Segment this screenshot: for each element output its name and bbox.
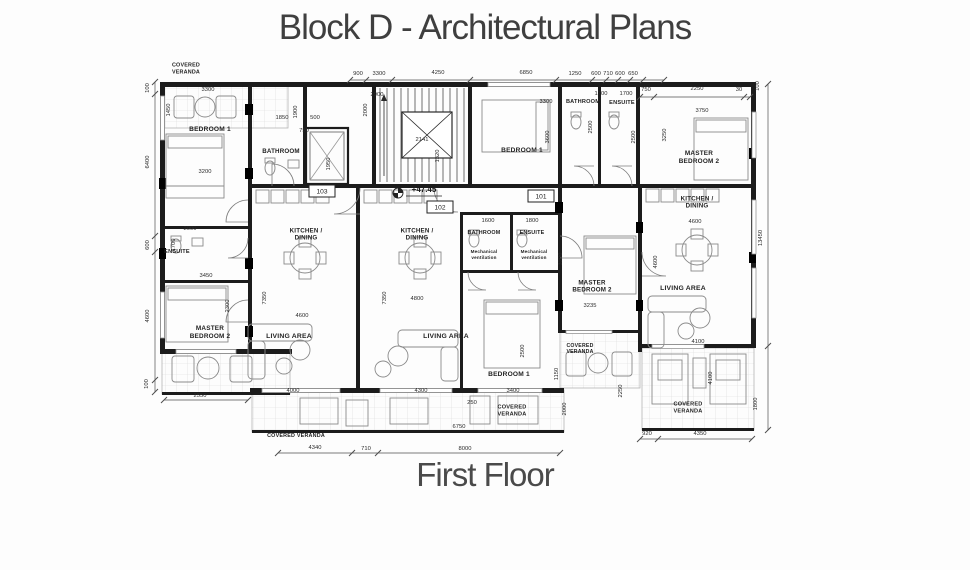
- dimension-label: 100: [144, 379, 150, 389]
- dimension-label: 600: [591, 71, 601, 77]
- dimension-label: 2000: [562, 403, 568, 416]
- room-label: ENSUITE: [520, 230, 545, 236]
- dimension-label: 7350: [382, 292, 388, 305]
- dimension-label: 4340: [309, 445, 322, 451]
- dimension-label: 4250: [432, 70, 445, 76]
- dimension-label: 3750: [696, 108, 709, 114]
- dimension-label: 1250: [569, 71, 582, 77]
- room-label: BEDROOM 1: [488, 371, 530, 378]
- dimension-label: 3400: [507, 388, 520, 394]
- dimension-label: 1320: [435, 150, 441, 163]
- room-label: ENSUITE: [164, 249, 190, 255]
- dimension-label: 4000: [287, 388, 300, 394]
- room-label: LIVING AREA: [266, 333, 312, 340]
- dimension-label: 2500: [631, 131, 637, 144]
- dimension-label: 100: [145, 83, 151, 93]
- dining-set: [399, 237, 441, 279]
- dimension-label: 3600: [545, 131, 551, 144]
- dimension-label: 750: [641, 87, 651, 93]
- level-value: +47.45: [412, 185, 437, 194]
- room-number: 101: [535, 193, 546, 200]
- dimension-label: 920: [642, 431, 652, 437]
- room-number: 103: [316, 188, 327, 195]
- dimension-label: 4600: [689, 219, 702, 225]
- dimension-label: 3200: [199, 169, 212, 175]
- dimension-label: 1700: [595, 91, 608, 97]
- room-label: COVEREDVERANDA: [497, 405, 526, 418]
- dimension-label: 1850: [276, 115, 289, 121]
- room-label: MASTERBEDROOM 2: [679, 150, 720, 165]
- room-label: BATHROOM: [468, 230, 501, 236]
- dimension-label: 750: [299, 128, 309, 134]
- dimension-label: 1600: [482, 218, 495, 224]
- room-label: COVEREDVERANDA: [673, 402, 702, 415]
- dimension-label: 2900: [371, 92, 384, 98]
- dimension-label: 2500: [588, 121, 594, 134]
- room-label: COVEREDVERANDA: [566, 343, 593, 355]
- dimension-label: 1700: [620, 91, 633, 97]
- dimension-label: 600: [615, 71, 625, 77]
- bed: [166, 134, 224, 198]
- dimension-label: 1950: [326, 158, 332, 171]
- dimension-label: 1700: [171, 239, 177, 252]
- dimension-label: 2000: [363, 104, 369, 117]
- dimension-label: 500: [310, 115, 320, 121]
- bed: [482, 100, 550, 152]
- dimension-label: 650: [628, 71, 638, 77]
- room-label: LIVING AREA: [423, 333, 469, 340]
- dining-set: [284, 237, 326, 279]
- architectural-plan-sheet: Block D - Architectural Plans First Floo…: [0, 0, 970, 570]
- dimension-label: 4600: [296, 313, 309, 319]
- room-label: ENSUITE: [609, 100, 635, 106]
- bed: [694, 118, 748, 180]
- dimension-label: 100: [755, 81, 761, 91]
- dimension-label: 2000: [184, 226, 197, 232]
- room-number: 102: [434, 204, 445, 211]
- dimension-label: 2250: [618, 385, 624, 398]
- room-label: COVERED VERANDA: [267, 433, 325, 439]
- bed: [484, 300, 540, 368]
- dimension-label: 4100: [708, 372, 714, 385]
- dimension-label: 7350: [262, 292, 268, 305]
- room-label: COVEREDVERANDA: [172, 63, 200, 76]
- dimension-label: 1150: [554, 368, 560, 380]
- dimension-label: 4350: [694, 431, 707, 437]
- dimension-label: 3300: [540, 99, 553, 105]
- dimension-label: 2250: [691, 86, 704, 92]
- dimension-label: 3250: [662, 129, 668, 142]
- dining-set: [676, 229, 718, 271]
- dimension-label: 3300: [373, 71, 386, 77]
- dimension-label: 8000: [459, 446, 472, 452]
- room-label: LIVING AREA: [660, 285, 706, 292]
- room-label: Mechanicalventilation: [471, 249, 498, 260]
- dimension-label: 4300: [415, 388, 428, 394]
- dimension-label: 900: [353, 71, 363, 77]
- dimension-label: 13450: [758, 230, 764, 246]
- room-label: KITCHEN /DINING: [290, 227, 323, 241]
- dimension-label: 710: [361, 446, 371, 452]
- dimension-label: 600: [145, 240, 151, 250]
- dimension-label: 2550: [194, 393, 207, 399]
- dimension-label: 6850: [520, 70, 533, 76]
- dimension-label: 1900: [293, 106, 299, 119]
- dimension-label: 6750: [453, 424, 466, 430]
- dimension-label: 710: [603, 71, 613, 77]
- dimension-label: 250: [467, 400, 477, 406]
- dimension-label: 3300: [202, 87, 215, 93]
- room-label: KITCHEN /DINING: [401, 227, 434, 241]
- dimension-label: 4800: [411, 296, 424, 302]
- dimension-label: 4600: [145, 310, 151, 323]
- dimension-label: 30: [736, 87, 742, 93]
- dimension-label: 3450: [200, 273, 213, 279]
- dimension-label: 1800: [753, 398, 759, 411]
- room-label: BEDROOM 1: [501, 147, 543, 154]
- dimension-label: 3200: [558, 253, 564, 266]
- dimension-label: 2300: [225, 300, 231, 313]
- toilet: [571, 112, 581, 129]
- dimension-label: 4600: [653, 256, 659, 269]
- toilet: [609, 112, 619, 129]
- dimension-label: 3235: [584, 303, 597, 309]
- dimension-label: 1800: [526, 218, 539, 224]
- dimension-label: 2141: [416, 137, 429, 143]
- room-label: MASTERBEDROOM 2: [190, 325, 231, 340]
- room-label: KITCHEN /DINING: [681, 195, 714, 209]
- room-label: BEDROOM 1: [189, 126, 231, 133]
- dimension-label: 2500: [520, 345, 526, 358]
- room-label: Mechanicalventilation: [521, 249, 548, 260]
- elevator-shaft: [306, 128, 348, 184]
- staircase: [380, 88, 464, 182]
- room-label: BATHROOM: [262, 148, 300, 155]
- room-label: MASTERBEDROOM 2: [572, 279, 612, 293]
- floor-plan-drawing: +47.45 COVEREDVERANDABEDROOM 1BATHROOMEN…: [0, 0, 970, 570]
- dimension-label: 1450: [166, 104, 172, 117]
- dimension-label: 4100: [692, 339, 705, 345]
- room-label: BATHROOM: [566, 99, 600, 105]
- dimension-label: 6400: [145, 156, 151, 169]
